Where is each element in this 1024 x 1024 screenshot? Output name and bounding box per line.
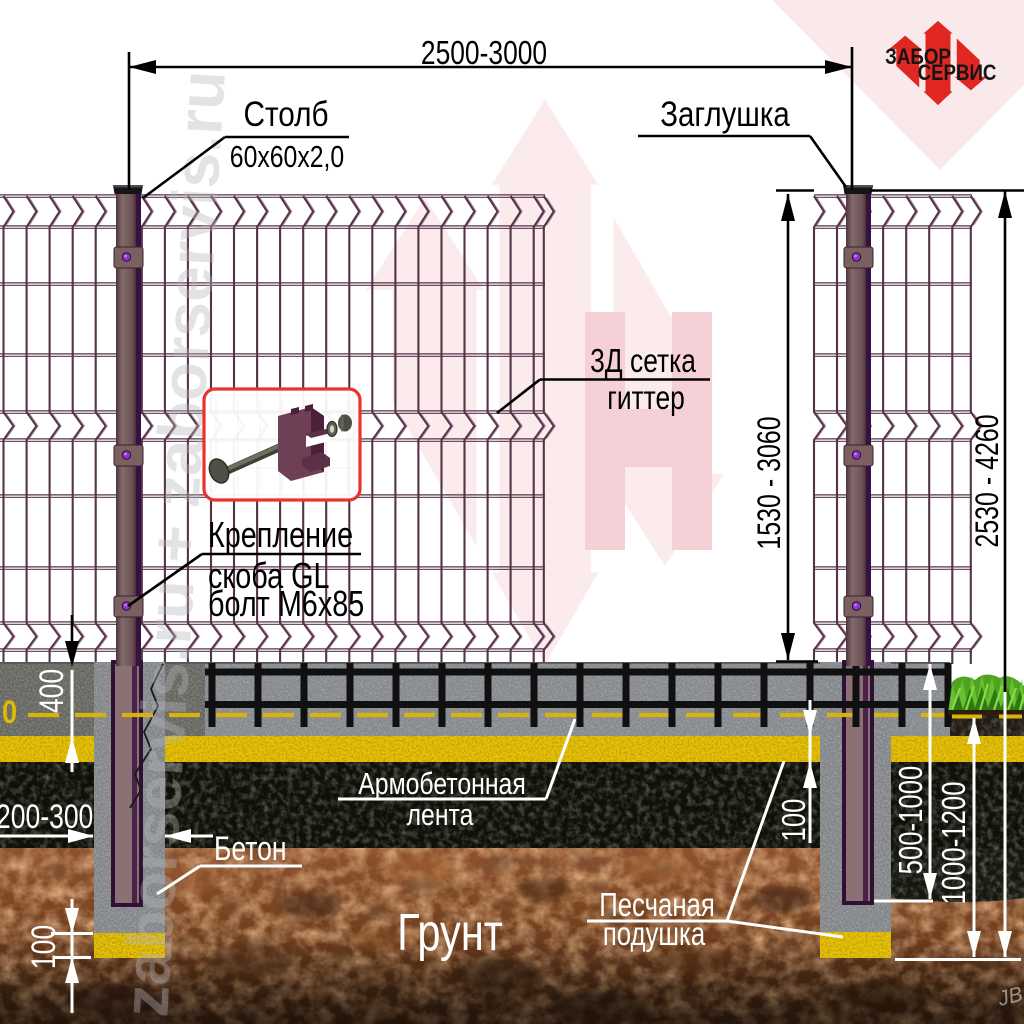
- svg-text:2530 - 4260: 2530 - 4260: [970, 414, 1006, 547]
- svg-text:500-1000: 500-1000: [893, 766, 930, 875]
- svg-text:2500-3000: 2500-3000: [421, 35, 547, 71]
- svg-text:Грунт: Грунт: [397, 903, 503, 962]
- svg-text:подушка: подушка: [603, 916, 706, 953]
- svg-text:200-300: 200-300: [0, 798, 93, 836]
- svg-text:1000-1200: 1000-1200: [936, 781, 973, 904]
- svg-text:400: 400: [33, 669, 71, 713]
- svg-text:Бетон: Бетон: [214, 830, 287, 868]
- svg-text:3Д сетка: 3Д сетка: [590, 343, 696, 379]
- svg-text:100: 100: [776, 799, 813, 842]
- svg-text:гиттер: гиттер: [607, 380, 685, 416]
- svg-text:Заглушка: Заглушка: [660, 95, 789, 134]
- svg-text:60x60x2,0: 60x60x2,0: [230, 139, 344, 173]
- svg-text:0: 0: [2, 695, 17, 731]
- svg-text:Крепление: Крепление: [208, 514, 353, 555]
- svg-text:Армобетонная: Армобетонная: [358, 766, 526, 800]
- svg-text:лента: лента: [407, 797, 474, 831]
- svg-text:100: 100: [25, 925, 63, 969]
- svg-text:болт М6х85: болт М6х85: [208, 583, 364, 624]
- svg-text:СЕРВИС: СЕРВИС: [918, 62, 997, 86]
- svg-text:1530 - 3060: 1530 - 3060: [752, 416, 788, 549]
- svg-text:Столб: Столб: [243, 95, 328, 134]
